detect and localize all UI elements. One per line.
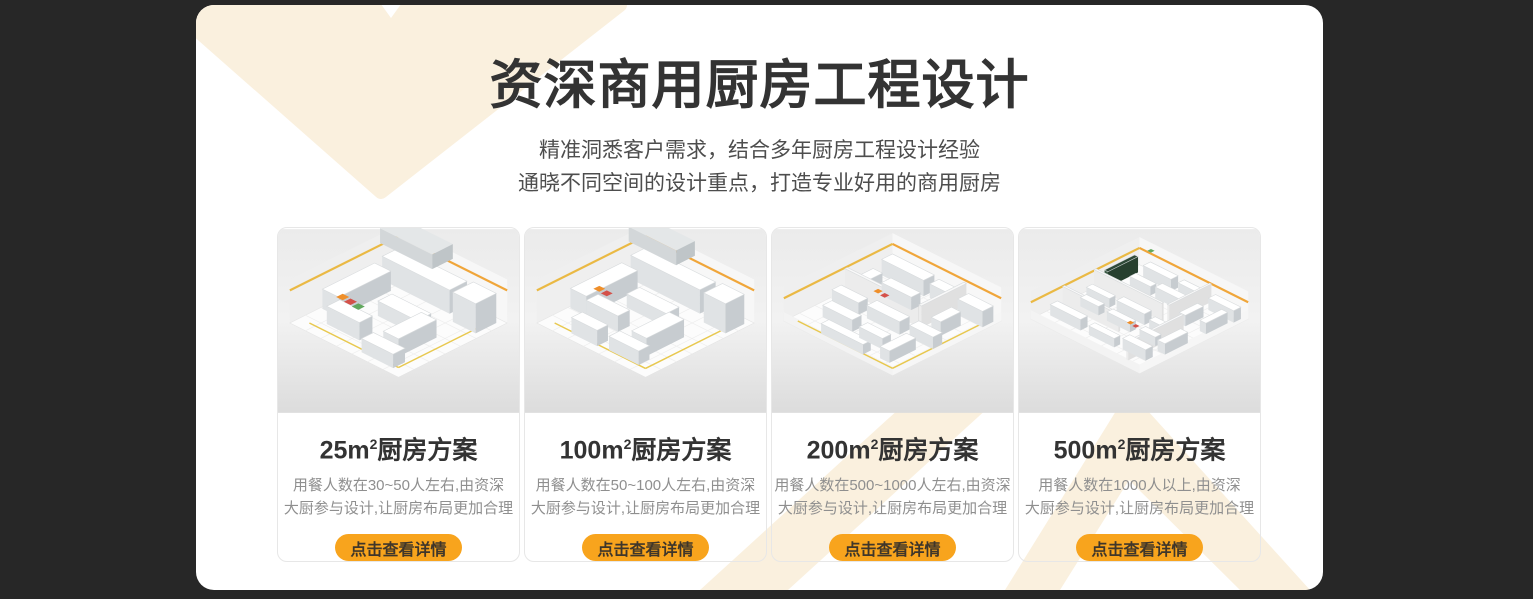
card-desc-line-2: 大厨参与设计,让厨房布局更加合理 xyxy=(284,500,513,517)
view-details-button[interactable]: 点击查看详情 xyxy=(335,534,462,561)
card-desc-line-1: 用餐人数在500~1000人左右,由资深 xyxy=(774,477,1010,494)
card-desc-line-1: 用餐人数在1000人以上,由资深 xyxy=(1038,477,1241,494)
card-title-prefix: 25m xyxy=(320,436,370,464)
card-description: 用餐人数在50~100人左右,由资深大厨参与设计,让厨房布局更加合理 xyxy=(531,474,760,520)
subtitle-line-2: 通晓不同空间的设计重点，打造专业好用的商用厨房 xyxy=(196,167,1323,200)
kitchen-render-image xyxy=(525,228,766,414)
card-title-suffix: 厨房方案 xyxy=(878,436,978,464)
kitchen-render-image xyxy=(1019,228,1260,414)
content-panel: 资深商用厨房工程设计 精准洞悉客户需求，结合多年厨房工程设计经验 通晓不同空间的… xyxy=(196,5,1323,590)
card-title-suffix: 厨房方案 xyxy=(377,436,477,464)
card-description: 用餐人数在500~1000人左右,由资深大厨参与设计,让厨房布局更加合理 xyxy=(774,474,1010,520)
page-title: 资深商用厨房工程设计 xyxy=(196,57,1323,115)
card-desc-line-1: 用餐人数在50~100人左右,由资深 xyxy=(536,477,756,494)
card-desc-line-1: 用餐人数在30~50人左右,由资深 xyxy=(293,477,504,494)
card-desc-line-2: 大厨参与设计,让厨房布局更加合理 xyxy=(531,500,760,517)
view-details-button[interactable]: 点击查看详情 xyxy=(829,534,956,561)
view-details-button[interactable]: 点击查看详情 xyxy=(582,534,709,561)
card-grid: 25m2厨房方案 用餐人数在30~50人左右,由资深大厨参与设计,让厨房布局更加… xyxy=(277,227,1261,562)
card-desc-line-2: 大厨参与设计,让厨房布局更加合理 xyxy=(1025,500,1254,517)
section-subtitle: 精准洞悉客户需求，结合多年厨房工程设计经验 通晓不同空间的设计重点，打造专业好用… xyxy=(196,134,1323,200)
plan-card-500m2[interactable]: 500m2厨房方案 用餐人数在1000人以上,由资深大厨参与设计,让厨房布局更加… xyxy=(1018,227,1261,562)
view-details-button[interactable]: 点击查看详情 xyxy=(1076,534,1203,561)
subtitle-line-1: 精准洞悉客户需求，结合多年厨房工程设计经验 xyxy=(196,134,1323,167)
card-title-prefix: 200m xyxy=(807,436,871,464)
card-title-prefix: 500m xyxy=(1054,436,1118,464)
page-background: { "header": { "title": "资深商用厨房工程设计", "su… xyxy=(0,0,1533,599)
kitchen-render-image xyxy=(772,228,1013,414)
card-description: 用餐人数在1000人以上,由资深大厨参与设计,让厨房布局更加合理 xyxy=(1025,474,1254,520)
card-title-prefix: 100m xyxy=(560,436,624,464)
card-title-suffix: 厨房方案 xyxy=(631,436,731,464)
plan-card-200m2[interactable]: 200m2厨房方案 用餐人数在500~1000人左右,由资深大厨参与设计,让厨房… xyxy=(771,227,1014,562)
card-description: 用餐人数在30~50人左右,由资深大厨参与设计,让厨房布局更加合理 xyxy=(284,474,513,520)
card-title: 500m2厨房方案 xyxy=(1054,428,1226,466)
card-title: 25m2厨房方案 xyxy=(320,428,478,466)
card-title-suffix: 厨房方案 xyxy=(1125,436,1225,464)
card-title: 200m2厨房方案 xyxy=(807,428,979,466)
plan-card-100m2[interactable]: 100m2厨房方案 用餐人数在50~100人左右,由资深大厨参与设计,让厨房布局… xyxy=(524,227,767,562)
card-desc-line-2: 大厨参与设计,让厨房布局更加合理 xyxy=(778,500,1007,517)
kitchen-render-image xyxy=(278,228,519,414)
section-header: 资深商用厨房工程设计 精准洞悉客户需求，结合多年厨房工程设计经验 通晓不同空间的… xyxy=(196,57,1323,200)
plan-card-25m2[interactable]: 25m2厨房方案 用餐人数在30~50人左右,由资深大厨参与设计,让厨房布局更加… xyxy=(277,227,520,562)
card-title: 100m2厨房方案 xyxy=(560,428,732,466)
